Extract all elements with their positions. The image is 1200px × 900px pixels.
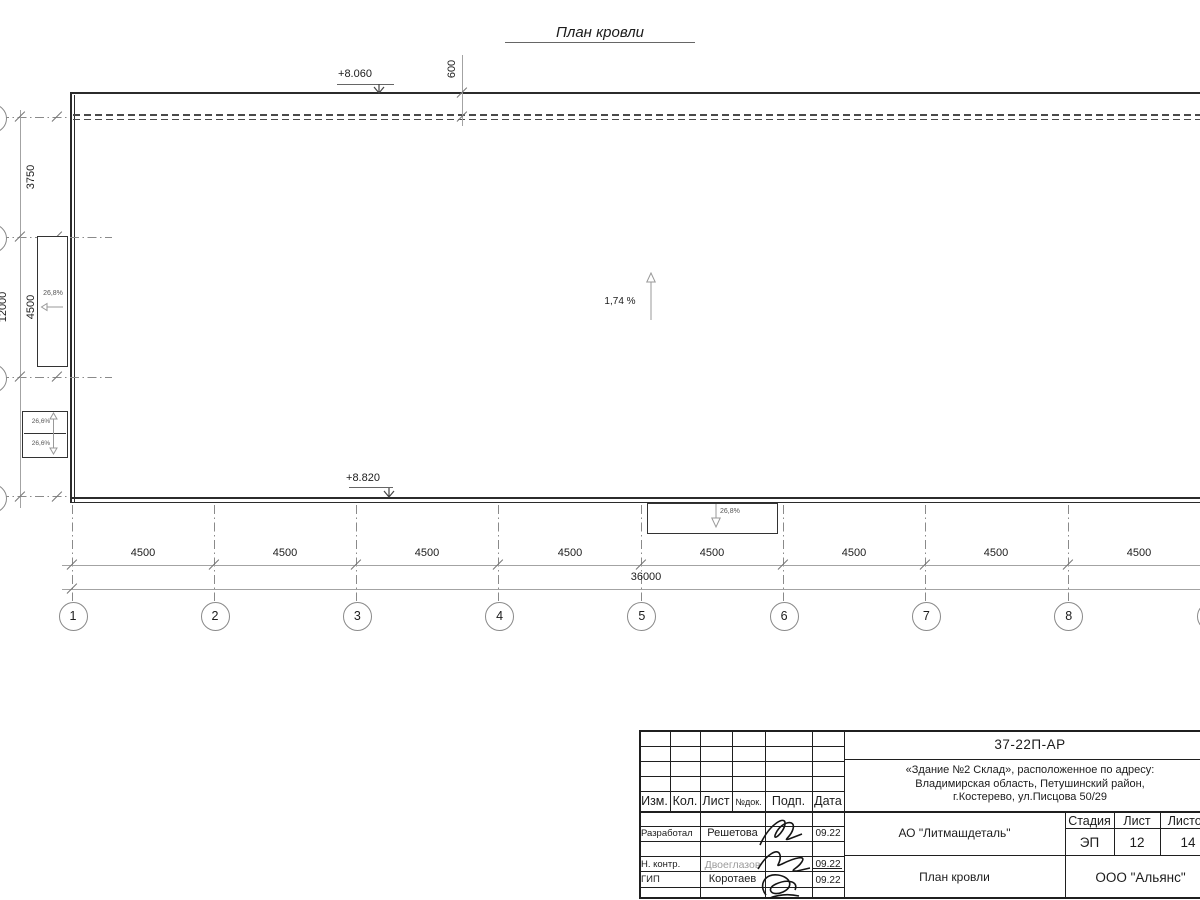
axis-col-line-4 (498, 505, 499, 601)
titleblock-line-header (639, 811, 1200, 813)
sheets-value: 14 (1160, 835, 1200, 850)
slope-arrow-left-icon (40, 302, 64, 312)
row-role-developer: Разработал (641, 828, 699, 839)
bottom-dim-line-total (62, 589, 1200, 590)
axis-bubble-8: 8 (1054, 602, 1083, 631)
header-col-ndoc: №док. (733, 797, 765, 807)
slope-arrow-up-icon (645, 272, 657, 322)
axis-bubble-row-3 (0, 364, 7, 393)
axis-number: 1 (70, 609, 77, 623)
wall-top (71, 92, 1200, 94)
titleblock-row-line (639, 791, 844, 792)
sheet-label: Лист (1114, 814, 1160, 828)
axis-number: 8 (1065, 609, 1072, 623)
axis-bubble-6: 6 (770, 602, 799, 631)
sheets-label: Листов (1160, 814, 1200, 828)
left-dim-label-2: 4500 (25, 295, 37, 319)
axis-number: 4 (496, 609, 503, 623)
slope-arrow-down-icon (710, 504, 722, 529)
axis-bubble-2: 2 (201, 602, 230, 631)
titleblock-line-stage-header (1065, 828, 1200, 829)
top-offset-label: 600 (446, 60, 458, 78)
titleblock-line-mid (844, 855, 1200, 857)
titleblock-border-top (639, 730, 1200, 732)
left-dim-label-1: 3750 (25, 165, 37, 189)
page-title: План кровли (505, 24, 695, 43)
titleblock-row-line (639, 776, 844, 777)
bay-dim-label: 4500 (405, 547, 449, 559)
wall-left-outer (70, 92, 72, 503)
stage-value: ЭП (1065, 835, 1114, 850)
contractor-name: ООО "Альянс" (1065, 870, 1200, 885)
signature-icon (750, 813, 822, 899)
roof-plan-sheet: { "title": "План кровли", "elevations": … (0, 0, 1200, 900)
bay-dim-label: 4500 (121, 547, 165, 559)
stage-label: Стадия (1065, 814, 1114, 828)
axis-col-line-7 (925, 505, 926, 601)
wall-bottom-outer (70, 497, 1200, 499)
titleblock-border-bottom (639, 897, 1200, 899)
axis-bubble-row-2 (0, 224, 7, 253)
bay-dim-label: 4500 (974, 547, 1018, 559)
bay-dim-label: 4500 (548, 547, 592, 559)
header-col-izm: Изм. (639, 794, 670, 808)
dim-tick (52, 492, 63, 503)
address-line-1: «Здание №2 Склад», расположенное по адре… (860, 764, 1200, 778)
axis-bubble-5: 5 (627, 602, 656, 631)
elevation-arrow-down-icon (372, 84, 386, 94)
row-role-ncontrol: Н. контр. (641, 859, 699, 870)
south-slope-label: 26,8% (720, 508, 750, 515)
axis-bubble-1: 1 (59, 602, 88, 631)
bay-dim-label: 4500 (263, 547, 307, 559)
main-slope-label: 1,74 % (598, 296, 642, 307)
left-dim-total-label: 12000 (0, 292, 9, 323)
axis-row-line-1 (0, 117, 70, 118)
bottom-dim-line-bays (62, 565, 1200, 566)
elevation-top-label: +8.060 (330, 68, 380, 80)
axis-col-line-8 (1068, 505, 1069, 601)
address-line-3: г.Костерево, ул.Писцова 50/29 (860, 791, 1200, 805)
bay-dim-label: 4500 (1117, 547, 1161, 559)
axis-number: 3 (354, 609, 361, 623)
titleblock-line-docnum (844, 759, 1200, 761)
address-line-2: Владимирская область, Петушинский район, (860, 778, 1200, 792)
axis-col-line-3 (356, 505, 357, 601)
bay-dim-label: 4500 (832, 547, 876, 559)
row-role-gip: ГИП (641, 874, 699, 885)
axis-number: 5 (638, 609, 645, 623)
axis-col-line-6 (783, 505, 784, 601)
slope-arrow-updown-icon (48, 412, 59, 455)
roof-edge-dashed-1 (73, 114, 1200, 116)
sheet-value: 12 (1114, 835, 1160, 850)
company-name: АО "Литмашдеталь" (844, 826, 1065, 840)
elevation-bottom-label: +8.820 (338, 472, 388, 484)
doc-number: 37-22П-АР (844, 737, 1200, 752)
axis-number: 7 (923, 609, 930, 623)
axis-number: 6 (781, 609, 788, 623)
axis-col-line-5 (641, 505, 642, 601)
axis-bubble-row-4 (0, 484, 7, 513)
left-dim-line (20, 110, 21, 508)
axis-bubble-7: 7 (912, 602, 941, 631)
titleblock-row-line (639, 746, 844, 747)
header-col-kol: Кол. (670, 794, 700, 808)
axis-bubble-4: 4 (485, 602, 514, 631)
titleblock-row-line (639, 761, 844, 762)
wall-left-inner (74, 95, 75, 502)
header-col-podp: Подп. (765, 794, 812, 808)
total-dim-label: 36000 (620, 571, 672, 583)
axis-bubble-row-1 (0, 104, 7, 133)
project-address: «Здание №2 Склад», расположенное по адре… (860, 764, 1200, 805)
bay-dim-label: 4500 (690, 547, 734, 559)
header-col-data: Дата (812, 794, 844, 808)
axis-bubble-3: 3 (343, 602, 372, 631)
roof-edge-dashed-2 (73, 119, 1200, 121)
wall-bottom-inner (70, 502, 1200, 503)
west-slope-label: 26,8% (40, 290, 66, 297)
axis-number: 2 (212, 609, 219, 623)
elevation-arrow-down-icon (382, 488, 396, 498)
drawing-name: План кровли (844, 870, 1065, 884)
axis-bubble-9-partial (1197, 602, 1200, 631)
axis-col-line-2 (214, 505, 215, 601)
header-col-list: Лист (700, 794, 732, 808)
southwest-ramp-divider (24, 433, 67, 435)
